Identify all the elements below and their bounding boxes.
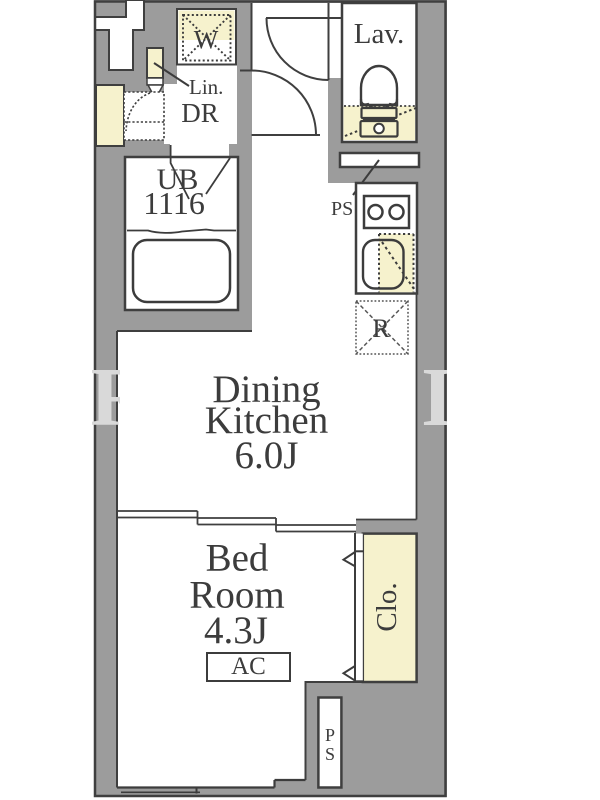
svg-text:W: W bbox=[194, 26, 219, 55]
svg-text:Clo.: Clo. bbox=[371, 582, 403, 631]
svg-text:Lin.: Lin. bbox=[189, 75, 223, 99]
svg-text:R: R bbox=[372, 314, 390, 343]
svg-text:AC: AC bbox=[231, 653, 266, 680]
svg-text:Lav.: Lav. bbox=[354, 18, 404, 50]
svg-text:P: P bbox=[325, 725, 335, 745]
svg-text:6.0J: 6.0J bbox=[235, 434, 299, 477]
svg-text:1116: 1116 bbox=[143, 185, 205, 221]
svg-text:4.3J: 4.3J bbox=[204, 609, 268, 652]
svg-text:PS: PS bbox=[331, 198, 353, 220]
svg-text:DR: DR bbox=[181, 98, 219, 128]
svg-text:S: S bbox=[325, 744, 335, 764]
